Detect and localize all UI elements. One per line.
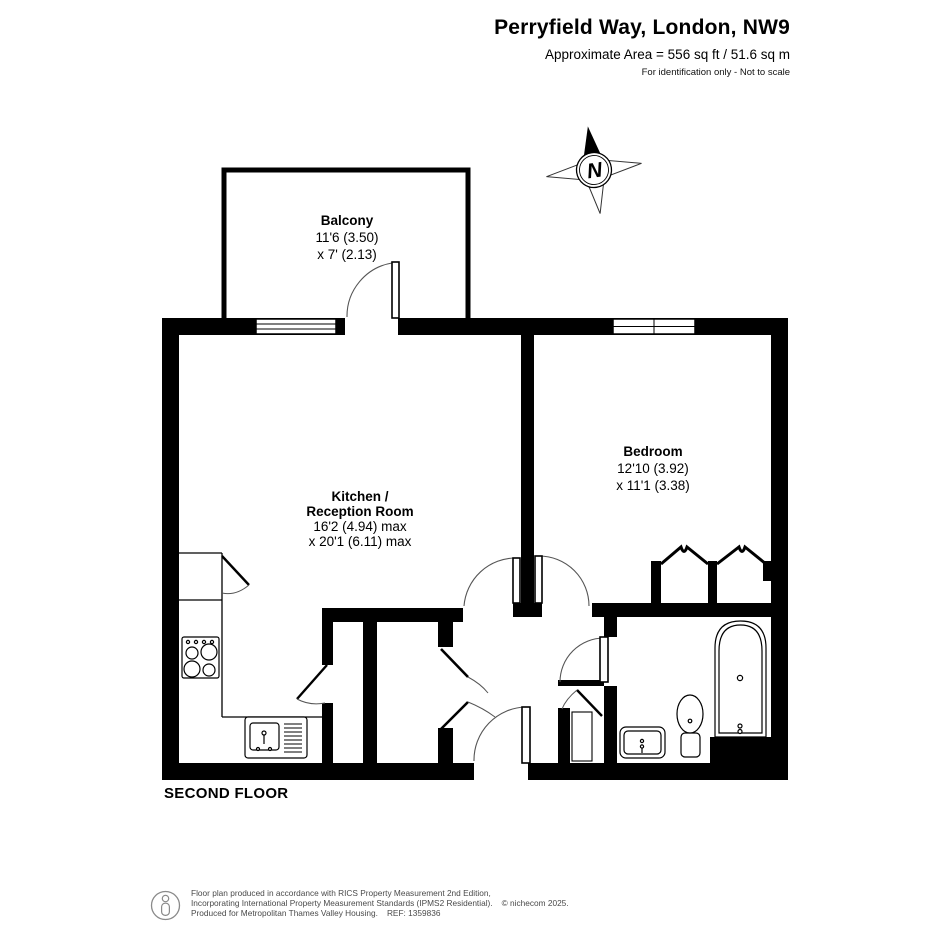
balcony-label: Balcony (321, 213, 374, 228)
toilet-icon (677, 695, 703, 757)
person-logo-icon (149, 888, 182, 923)
balcony-dim2: x 7' (2.13) (317, 247, 377, 262)
bathtub-icon (715, 621, 766, 737)
kitchen-door-leaf (513, 558, 520, 603)
floor-label: SECOND FLOOR (164, 785, 288, 802)
bedroom-dim2: x 11'1 (3.38) (616, 478, 690, 493)
bedroom-label: Bedroom (623, 444, 682, 459)
footer-ref: REF: 1359836 (387, 908, 441, 918)
bathroom-door-leaf (600, 637, 608, 682)
floorplan-drawing: Balcony 11'6 (3.50) x 7' (2.13) Kitchen … (0, 0, 945, 945)
footer: Floor plan produced in accordance with R… (149, 888, 569, 923)
basin-icon (620, 727, 665, 758)
entrance-door-leaf (522, 707, 530, 763)
kitchen-dim1: 16'2 (4.94) max (313, 519, 407, 534)
footer-copyright: © nichecom 2025. (502, 898, 569, 908)
kitchen-label-line1: Kitchen / (331, 489, 388, 504)
wall-openings (256, 317, 695, 781)
footer-line1: Floor plan produced in accordance with R… (191, 888, 569, 898)
kitchen-label-line2: Reception Room (306, 504, 413, 519)
larder-door-leaf (297, 665, 327, 699)
hall-niche (572, 712, 592, 761)
room-labels: Balcony 11'6 (3.50) x 7' (2.13) Kitchen … (306, 213, 689, 549)
corner-cupboard-door-leaf (222, 556, 249, 585)
kitchen-dim2: x 20'1 (6.11) max (309, 534, 412, 549)
stove-icon (182, 637, 219, 678)
window-kitchen (256, 319, 336, 334)
floorplan-page: Perryfield Way, London, NW9 Approximate … (0, 0, 945, 945)
storage-door-leaf-bottom (441, 702, 468, 729)
kitchen-sink-icon (245, 717, 307, 758)
window-bedroom (613, 319, 695, 334)
bedroom-door-leaf (535, 556, 542, 603)
footer-text: Floor plan produced in accordance with R… (191, 888, 569, 919)
kitchen-counter (179, 553, 322, 717)
balcony-dim1: 11'6 (3.50) (315, 230, 378, 245)
closet-bifold-left (661, 547, 708, 564)
storage-door-leaf-top (441, 649, 468, 677)
bedroom-dim1: 12'10 (3.92) (617, 461, 689, 476)
footer-line3: Produced for Metropolitan Thames Valley … (191, 908, 569, 918)
closet-bifold-right (717, 547, 766, 564)
doors (222, 262, 766, 763)
footer-line2: Incorporating International Property Mea… (191, 898, 569, 908)
balcony-door-leaf (392, 262, 399, 318)
compass-icon: N (540, 120, 647, 221)
